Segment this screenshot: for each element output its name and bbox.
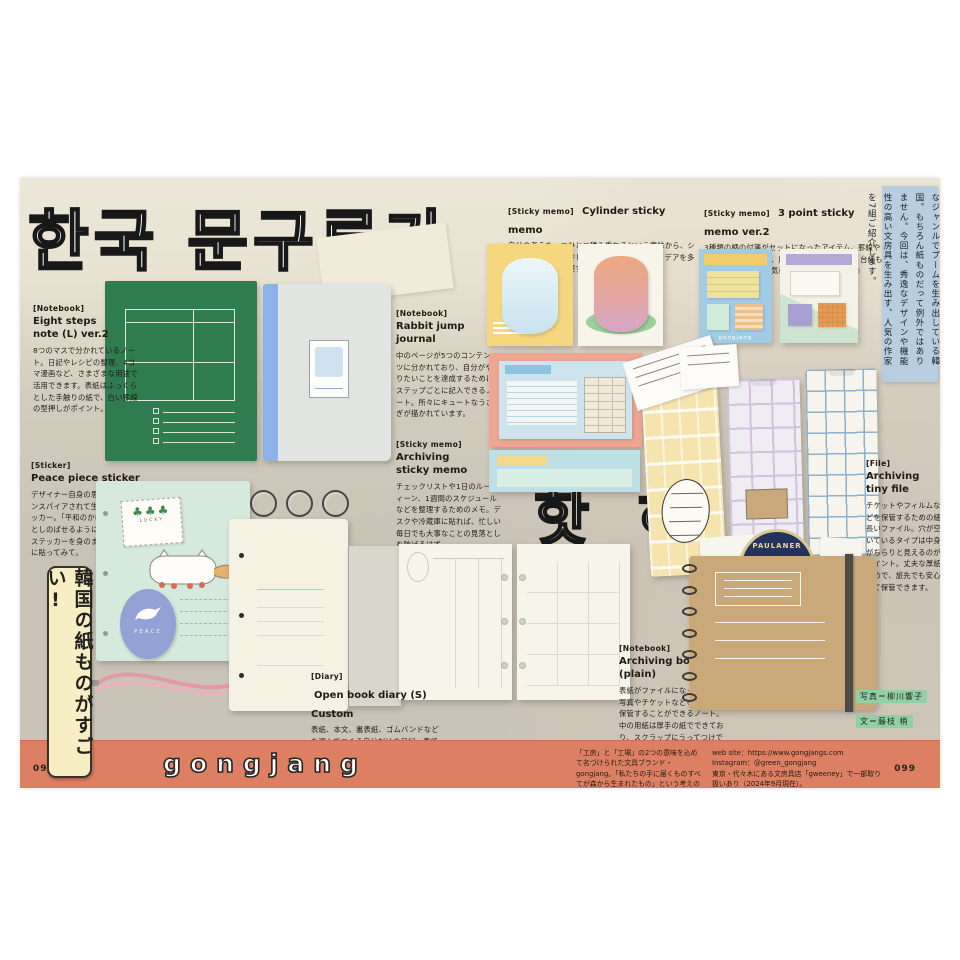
memo-pad-grid [818, 303, 846, 327]
dashed-line [180, 599, 236, 600]
peace-word: PEACE [120, 629, 176, 635]
label-desc: 8つのマスで分かれているノート。日記やレシピの整理、4コマ漫画など、さまざまな用… [33, 345, 139, 415]
product-cylinder-memo-white [578, 244, 663, 346]
magazine-page: 한국 문구류가 핫 하 다 ! 音楽やドラマ、ファッションなど、多様なジャンルで… [0, 0, 960, 960]
ring-icon [250, 490, 277, 517]
label-name: Archiving sticky memo [396, 451, 502, 477]
file-rect-window [745, 488, 788, 519]
label-tag: [Notebook] [33, 304, 139, 313]
label-name: Rabbit jump journal [396, 320, 496, 346]
journal-cover-sticker [309, 340, 349, 398]
dashed-line [180, 623, 236, 624]
label-tag: [Notebook] [396, 309, 496, 318]
spiral-binding [682, 564, 698, 702]
product-3point-memo-green [780, 249, 858, 343]
label-tiny-file: [File] Archiving tiny file チケットやフィルムなどを保… [866, 459, 940, 593]
memo-pad-purple [788, 304, 812, 326]
side-banner: 韓国の紙ものがすごい! [47, 566, 92, 778]
peace-dove-sticker: PEACE [120, 589, 176, 659]
sheet-header-line [433, 558, 504, 559]
product-archiving-memo-teal [489, 450, 640, 492]
planner-tab [505, 365, 551, 374]
magazine-spread: 한국 문구류가 핫 하 다 ! 音楽やドラマ、ファッションなど、多様なジャンルで… [20, 178, 940, 788]
product-mint-folder: ♣♣♣ LUCKY PEACE [96, 481, 250, 661]
side-banner-text: 韓国の紙ものがすごい! [43, 568, 97, 776]
clover-stamp-sticker: ♣♣♣ LUCKY [120, 497, 183, 547]
journal-spine [263, 284, 278, 461]
sticker-line [315, 388, 343, 389]
sheet-circle [407, 552, 429, 582]
header-band [704, 254, 767, 265]
cover-line [715, 658, 825, 659]
label-desc: チェックリストや1日のルーティーン、1週間のスケジュールなどを整理するためのメモ… [396, 481, 502, 551]
label-desc: チケットやフィルムなどを保管するための細長いファイル。穴が空いているタイプは中身… [866, 500, 940, 593]
product-cylinder-memo-yellow [487, 244, 573, 346]
ring-icon [286, 490, 313, 517]
product-blue-journal [263, 284, 391, 461]
ring-icon [322, 490, 349, 517]
dove-icon [133, 603, 163, 625]
hole-punch [103, 571, 108, 576]
planner-tab [497, 456, 547, 465]
diary-line [257, 621, 324, 622]
website-url: web site：https://www.gongjangs.com [712, 748, 882, 758]
ticket-stub-small [679, 344, 740, 390]
label-tag: [Sticky memo] [508, 207, 574, 216]
file-notch [828, 369, 854, 376]
sticker-art [315, 347, 343, 377]
dashed-line [180, 635, 236, 636]
product-3point-memo-blue: gongjang [699, 249, 772, 343]
label-tag: [Sticker] [31, 461, 143, 470]
dashed-line [180, 611, 236, 612]
memo-pad-striped [735, 304, 763, 330]
header-band [786, 254, 852, 265]
memo-pad-lined [707, 271, 759, 298]
notebook-grid-lines [125, 309, 235, 401]
file-notch [750, 379, 776, 387]
cover-form-box [715, 572, 801, 606]
label-desc: 中のページが5つのコンテンツに分かれており、自分がやりたいことを達成するためにス… [396, 350, 496, 420]
label-tag: [Diary] [311, 672, 343, 681]
binder-rings [250, 490, 350, 520]
planner-table [584, 377, 626, 433]
brand-logo: gongjang [160, 749, 370, 778]
memo-pad-mint [707, 304, 729, 330]
product-archiving-memo-salmon [489, 353, 642, 447]
planner-sheet [499, 361, 632, 439]
intro-box: 音楽やドラマ、ファッションなど、多様なジャンルでブームを生み出している韓国。もち… [882, 186, 938, 382]
label-eight-steps: [Notebook] Eight steps note (L) ver.2 8つ… [33, 304, 139, 415]
cat-sticker [144, 547, 240, 591]
photo-credit: 写真＝柳川響子 [856, 690, 927, 703]
notebook-list-lines [163, 403, 235, 443]
cylinder-shape-blue [502, 258, 558, 334]
sheet-columns [433, 558, 504, 688]
diary-title-line [257, 589, 324, 590]
credits: 写真＝柳川響子 文＝藤枝 梢 [856, 684, 940, 734]
planner-ruled-area [507, 381, 577, 425]
label-rabbit-jump: [Notebook] Rabbit jump journal 中のページが5つの… [396, 309, 496, 420]
memo-pad-white [790, 271, 840, 296]
planner-sheet [497, 469, 632, 487]
shop-note: 東京・代々木にある文房具店「gweeney」で一部取り扱いあり（2024年9月現… [712, 769, 882, 788]
monthly-refill-sheet [517, 544, 630, 700]
label-name: Open book diary (S) Custom [311, 690, 427, 720]
elastic-band [845, 554, 853, 712]
grid-line [193, 310, 194, 400]
label-tag: [Sticky memo] [704, 209, 770, 218]
sheet-grid [527, 562, 620, 686]
brand-description: 「工房」と「工場」の2つの意味を込めて名づけられた文具ブランド・gongjang… [576, 748, 704, 788]
file-oval-window [659, 477, 712, 545]
cover-line [715, 640, 825, 641]
label-name: Archiving tiny file [866, 470, 940, 496]
diary-line [257, 635, 324, 636]
hole-punch [103, 631, 108, 636]
diary-line [257, 607, 324, 608]
grid-line [126, 322, 234, 323]
product-archiving-book [689, 556, 877, 710]
hole-punch [103, 511, 108, 516]
website-info: web site：https://www.gongjangs.com Insta… [712, 748, 882, 788]
label-name: Eight steps note (L) ver.2 [33, 315, 139, 341]
instagram-handle: Instagram：@green_gongjang [712, 758, 882, 768]
label-archiving-memo: [Sticky memo] Archiving sticky memo チェック… [396, 440, 502, 551]
footer-bar: 098 gongjang 「工房」と「工場」の2つの意味を込めて名づけられた文具… [20, 740, 940, 788]
cylinder-shape-gradient [594, 256, 648, 332]
label-tag: [Sticky memo] [396, 440, 502, 449]
label-tag: [File] [866, 459, 940, 468]
grid-line [126, 362, 234, 363]
text-credit: 文＝藤枝 梢 [856, 715, 913, 728]
cover-line [715, 622, 825, 623]
coaster-word: PAULANER [742, 542, 812, 550]
page-number-right: 099 [894, 764, 916, 774]
